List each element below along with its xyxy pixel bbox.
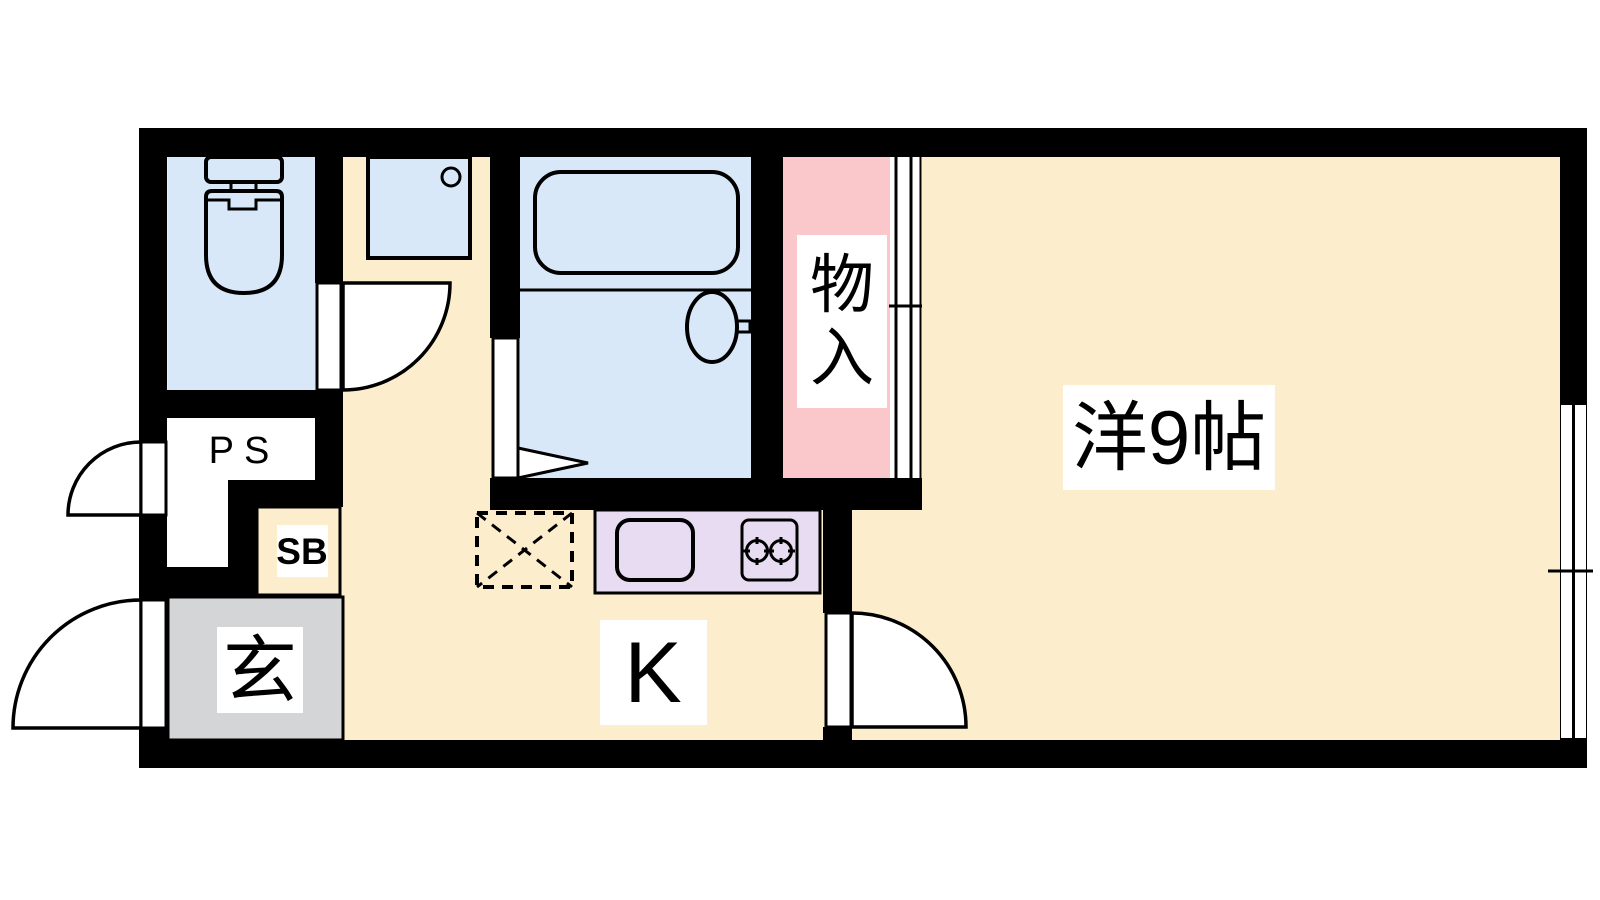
- wall-toilet-upper: [315, 157, 343, 283]
- label-pipe-space: PS: [209, 430, 280, 472]
- wall-kitchen-room-upper: [823, 510, 852, 613]
- closet-sliding-door: [889, 157, 922, 478]
- wall-below-ps: [167, 567, 257, 597]
- wall-bath-closet: [751, 157, 783, 478]
- wall-below-toilet: [167, 390, 315, 418]
- label-kitchen: K: [600, 620, 707, 725]
- label-shoe-box: SB: [276, 525, 328, 577]
- kitchen-counter: [595, 510, 820, 593]
- pipe-space-area-lower: [167, 480, 228, 567]
- wall-kitchen-room-lower: [823, 727, 852, 740]
- entrance-label: 玄: [223, 629, 297, 712]
- storage-label-char2: 入: [810, 322, 874, 394]
- main-room-label: 洋9帖: [1072, 396, 1266, 481]
- wall-bath-left: [490, 157, 520, 338]
- washing-machine-area: [368, 157, 470, 258]
- wall-sb-top: [228, 480, 343, 507]
- label-main-room: 洋9帖: [1063, 385, 1275, 490]
- kitchen-label: K: [624, 625, 681, 721]
- floor-plan: PS SB 玄 K 物 入 洋9帖: [0, 0, 1600, 900]
- label-storage-closet: 物 入: [797, 235, 887, 408]
- pipe-space-label: PS: [209, 430, 280, 472]
- label-entrance: 玄: [217, 627, 303, 713]
- shoe-box-label: SB: [276, 531, 327, 572]
- storage-label-char1: 物: [810, 249, 874, 321]
- washbasin-bowl: [687, 292, 737, 362]
- wall-mid-horizontal: [490, 478, 922, 510]
